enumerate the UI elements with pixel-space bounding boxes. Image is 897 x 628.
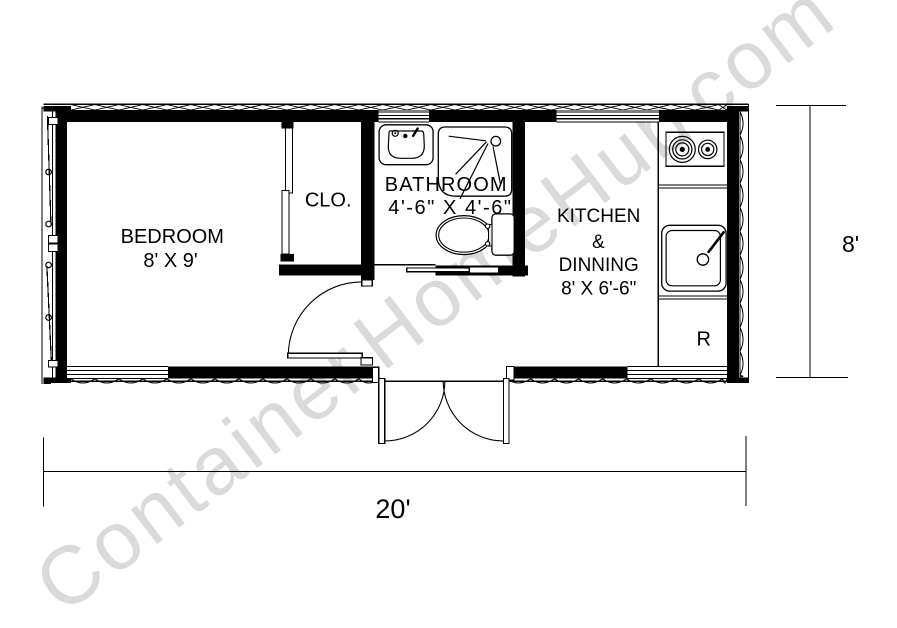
svg-text:R: R [696,329,710,351]
svg-text:CLO.: CLO. [305,189,352,211]
svg-text:&: & [592,232,605,253]
svg-text:BEDROOM: BEDROOM [121,226,224,248]
svg-text:KITCHEN: KITCHEN [557,206,640,227]
svg-text:DINNING: DINNING [559,255,639,276]
svg-text:BATHROOM: BATHROOM [385,174,508,196]
svg-text:8' X 6'-6": 8' X 6'-6" [561,278,636,299]
svg-text:20': 20' [375,494,410,524]
svg-text:8': 8' [842,231,859,257]
svg-text:4'-6" X 4'-6": 4'-6" X 4'-6" [388,197,512,219]
svg-text:8' X 9': 8' X 9' [143,250,197,272]
